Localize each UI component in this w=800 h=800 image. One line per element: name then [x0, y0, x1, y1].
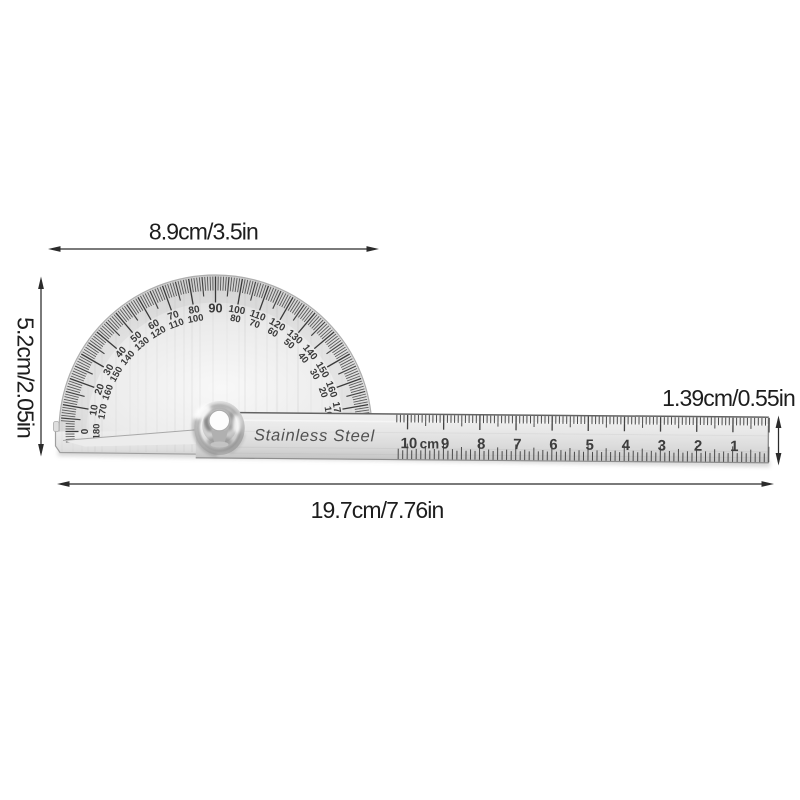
svg-text:7: 7 — [513, 436, 521, 453]
svg-text:Stainless Steel: Stainless Steel — [254, 426, 376, 445]
svg-text:5: 5 — [585, 437, 593, 454]
svg-text:8.9cm/3.5in: 8.9cm/3.5in — [149, 218, 258, 244]
svg-text:2: 2 — [694, 438, 702, 455]
svg-text:4: 4 — [622, 437, 631, 454]
svg-text:9: 9 — [441, 435, 449, 452]
svg-text:6: 6 — [549, 436, 557, 453]
svg-text:0: 0 — [80, 428, 91, 434]
svg-text:19.7cm/7.76in: 19.7cm/7.76in — [311, 497, 444, 523]
svg-text:3: 3 — [658, 437, 666, 454]
svg-text:1.39cm/0.55in: 1.39cm/0.55in — [662, 385, 795, 411]
svg-text:10: 10 — [400, 435, 417, 452]
svg-text:1: 1 — [730, 438, 738, 455]
svg-text:80: 80 — [229, 313, 241, 326]
svg-text:cm: cm — [420, 436, 440, 451]
svg-text:90: 90 — [208, 301, 222, 316]
svg-text:8: 8 — [477, 436, 485, 453]
svg-text:5.2cm/2.05in: 5.2cm/2.05in — [12, 317, 38, 438]
